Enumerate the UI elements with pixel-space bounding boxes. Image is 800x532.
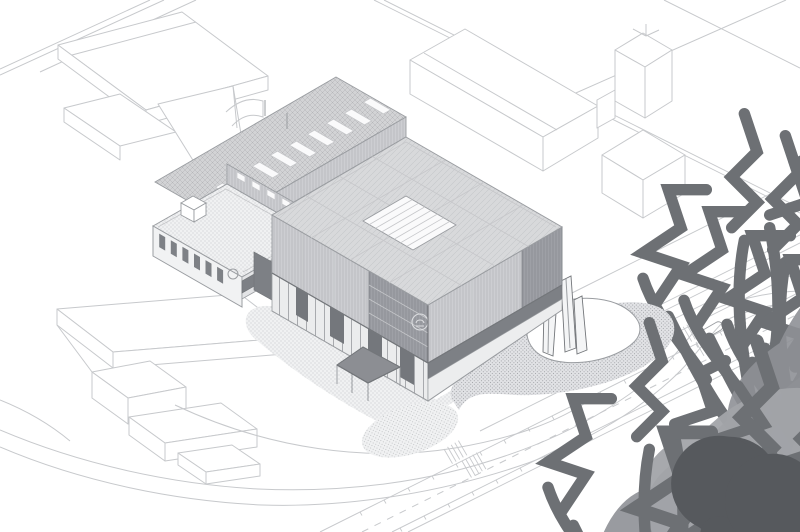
site-axonometric-drawing: sports-hall [0, 0, 800, 532]
context-building-north-bar [410, 29, 598, 171]
context-tower [597, 24, 672, 128]
drawing-canvas: sports-hall [0, 0, 800, 532]
